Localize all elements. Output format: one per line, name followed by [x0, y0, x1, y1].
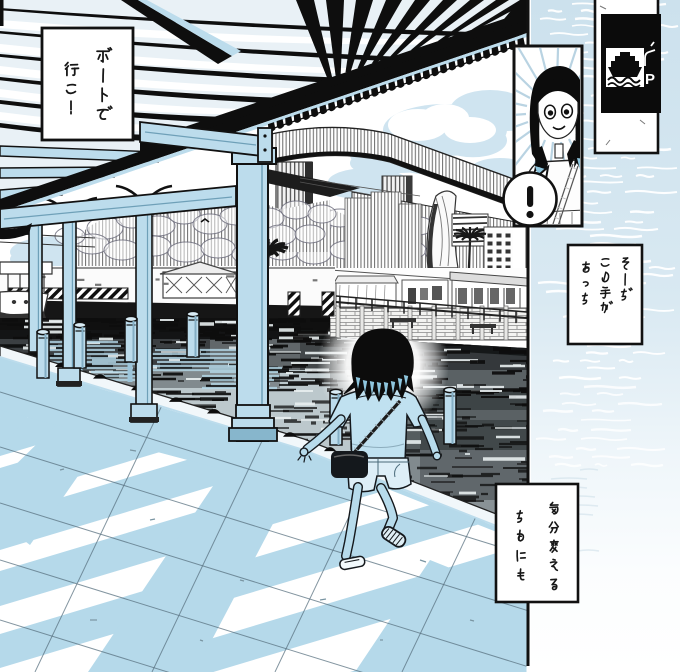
- svg-text:P: P: [645, 71, 655, 88]
